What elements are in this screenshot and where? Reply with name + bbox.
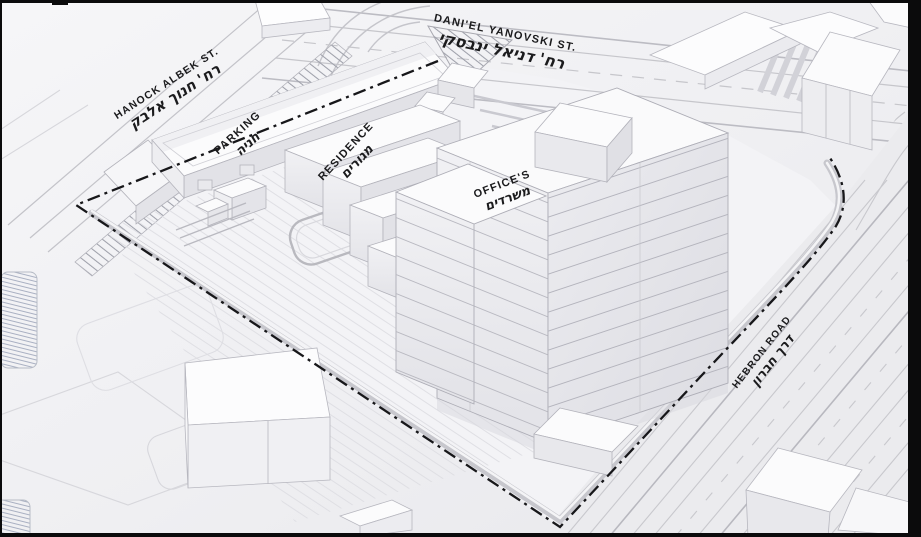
context-bottom-left-box <box>185 348 330 488</box>
axonometric-model: HANOCK ALBEK ST. רח' חנוך אלבק DANI'EL Y… <box>0 0 921 537</box>
podium-box <box>535 103 632 182</box>
site-axonometric-render: HANOCK ALBEK ST. רח' חנוך אלבק DANI'EL Y… <box>0 0 921 537</box>
